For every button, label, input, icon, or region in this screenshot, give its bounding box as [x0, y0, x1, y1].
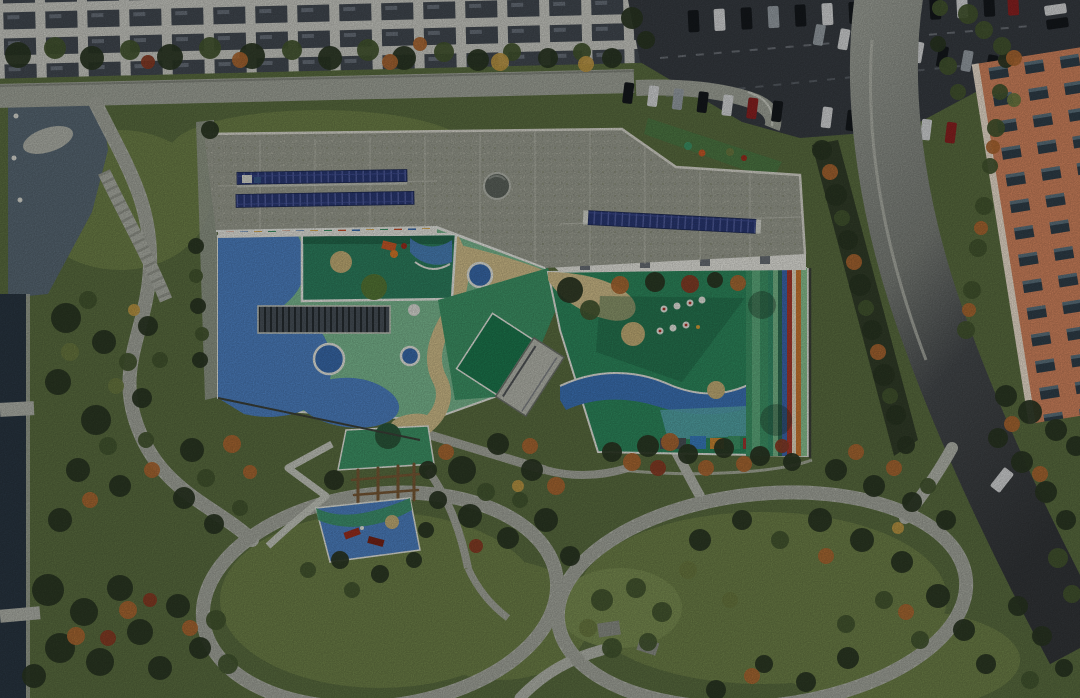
- aerial-photo-canvas: [0, 0, 1080, 698]
- aerial-photo: [0, 0, 1080, 698]
- film-grain-overlay: [0, 0, 1080, 698]
